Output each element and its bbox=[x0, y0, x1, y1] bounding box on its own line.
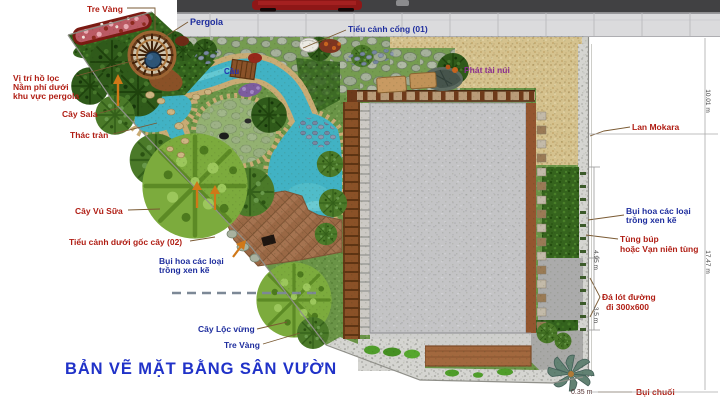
svg-text:4.95 m: 4.95 m bbox=[592, 250, 599, 270]
svg-text:Lan Mokara: Lan Mokara bbox=[632, 122, 680, 132]
svg-text:Tre Vàng: Tre Vàng bbox=[87, 4, 123, 14]
svg-text:Đá lót đường: Đá lót đường bbox=[602, 292, 656, 302]
svg-text:Tiểu cảnh dưới gốc cây (02): Tiểu cảnh dưới gốc cây (02) bbox=[69, 237, 182, 247]
svg-text:trồng xen kẽ: trồng xen kẽ bbox=[159, 265, 210, 275]
svg-text:0.35 m: 0.35 m bbox=[571, 389, 593, 396]
svg-text:hoặc Vạn niên tùng: hoặc Vạn niên tùng bbox=[620, 244, 698, 254]
svg-text:Cầu: Cầu bbox=[224, 67, 239, 76]
svg-text:Cây Vú Sữa: Cây Vú Sữa bbox=[75, 206, 123, 216]
svg-text:BẢN VẼ MẶT BẰNG SÂN VƯỜN: BẢN VẼ MẶT BẰNG SÂN VƯỜN bbox=[65, 358, 337, 378]
svg-text:Tre Vàng: Tre Vàng bbox=[224, 340, 260, 350]
svg-text:Tiểu cảnh cổng (01): Tiểu cảnh cổng (01) bbox=[348, 24, 428, 34]
svg-text:trồng xen kẽ: trồng xen kẽ bbox=[626, 215, 677, 225]
svg-text:Phát tài núi: Phát tài núi bbox=[464, 65, 510, 75]
svg-text:Cây Lộc vừng: Cây Lộc vừng bbox=[198, 324, 255, 334]
svg-text:Tùng búp: Tùng búp bbox=[620, 234, 659, 244]
svg-text:đi 300x600: đi 300x600 bbox=[606, 302, 649, 312]
svg-text:10.01 m: 10.01 m bbox=[704, 89, 711, 113]
svg-text:Pergola: Pergola bbox=[190, 17, 224, 27]
svg-text:3.5 m: 3.5 m bbox=[592, 307, 599, 323]
svg-text:17.47 m: 17.47 m bbox=[704, 250, 711, 274]
svg-text:khu vực pergola: khu vực pergola bbox=[13, 91, 79, 101]
svg-text:Thác tràn: Thác tràn bbox=[70, 130, 108, 140]
svg-text:Cây Sala: Cây Sala bbox=[62, 109, 98, 119]
